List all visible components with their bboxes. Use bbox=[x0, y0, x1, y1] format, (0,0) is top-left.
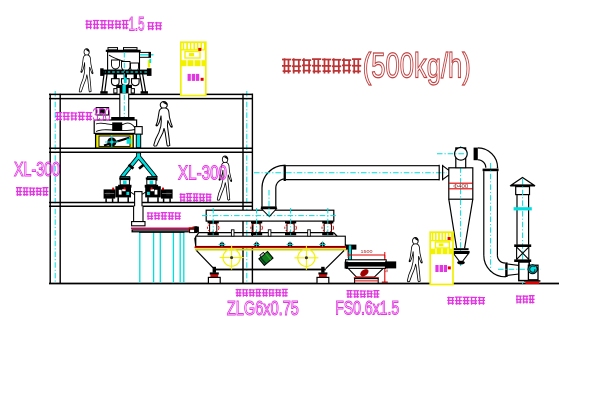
svg-text:ZLG6x0.75: ZLG6x0.75 bbox=[227, 298, 299, 320]
svg-text:(500kg/h): (500kg/h) bbox=[363, 47, 471, 86]
svg-text:XL-300: XL-300 bbox=[178, 163, 227, 185]
svg-text:FS0.6x1.5: FS0.6x1.5 bbox=[335, 299, 399, 320]
svg-text:1.5: 1.5 bbox=[129, 15, 145, 36]
svg-text:350: 350 bbox=[93, 105, 111, 125]
svg-text:Φ400: Φ400 bbox=[453, 184, 468, 190]
svg-text:1500: 1500 bbox=[361, 249, 373, 255]
svg-text:XL-300: XL-300 bbox=[14, 159, 60, 181]
